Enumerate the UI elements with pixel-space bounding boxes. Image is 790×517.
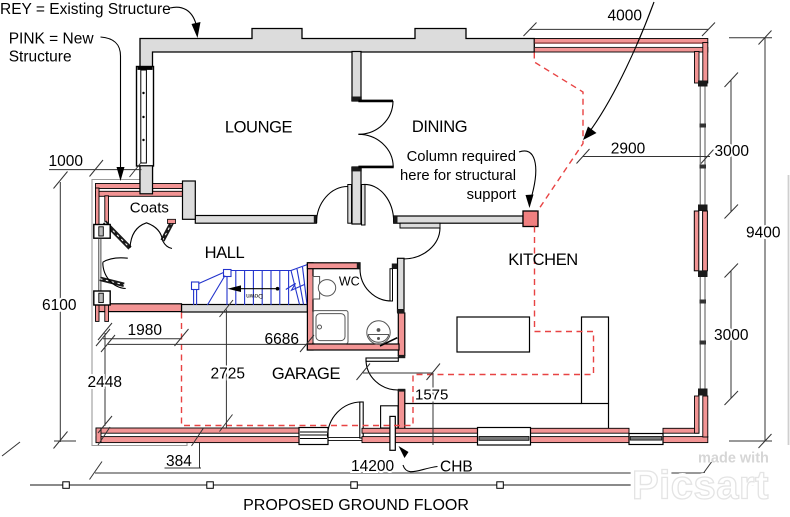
svg-text:Structure: Structure xyxy=(9,49,72,66)
svg-text:PROPOSED GROUND FLOOR: PROPOSED GROUND FLOOR xyxy=(243,497,469,514)
svg-text:1980: 1980 xyxy=(128,322,163,339)
svg-text:3000: 3000 xyxy=(714,327,749,344)
svg-text:HALL: HALL xyxy=(205,244,245,262)
svg-text:here for structural: here for structural xyxy=(400,168,516,184)
svg-text:WC: WC xyxy=(339,275,360,289)
svg-text:Picsart: Picsart xyxy=(632,464,769,508)
svg-text:6686: 6686 xyxy=(265,331,299,348)
svg-text:1575: 1575 xyxy=(415,387,448,404)
svg-text:3000: 3000 xyxy=(715,143,750,160)
svg-text:2900: 2900 xyxy=(611,141,646,158)
svg-text:14200: 14200 xyxy=(351,458,394,475)
svg-text:6100: 6100 xyxy=(42,297,77,314)
svg-text:KITCHEN: KITCHEN xyxy=(508,251,578,269)
svg-text:1000: 1000 xyxy=(49,153,84,170)
svg-text:Column required: Column required xyxy=(407,149,516,165)
svg-text:LOUNGE: LOUNGE xyxy=(225,119,293,137)
svg-text:Down: Down xyxy=(246,292,263,299)
svg-text:Coats: Coats xyxy=(130,200,169,217)
svg-text:GARAGE: GARAGE xyxy=(272,365,341,383)
svg-text:384: 384 xyxy=(166,453,192,470)
svg-text:4000: 4000 xyxy=(608,8,643,25)
svg-text:2448: 2448 xyxy=(88,374,122,391)
svg-text:PINK = New: PINK = New xyxy=(9,31,95,48)
svg-text:CHB: CHB xyxy=(440,459,473,476)
svg-text:2725: 2725 xyxy=(211,366,245,383)
svg-text:REY = Existing Structure: REY = Existing Structure xyxy=(0,1,171,18)
svg-text:DINING: DINING xyxy=(412,118,467,136)
svg-text:9400: 9400 xyxy=(746,225,781,242)
svg-text:support: support xyxy=(467,187,516,203)
